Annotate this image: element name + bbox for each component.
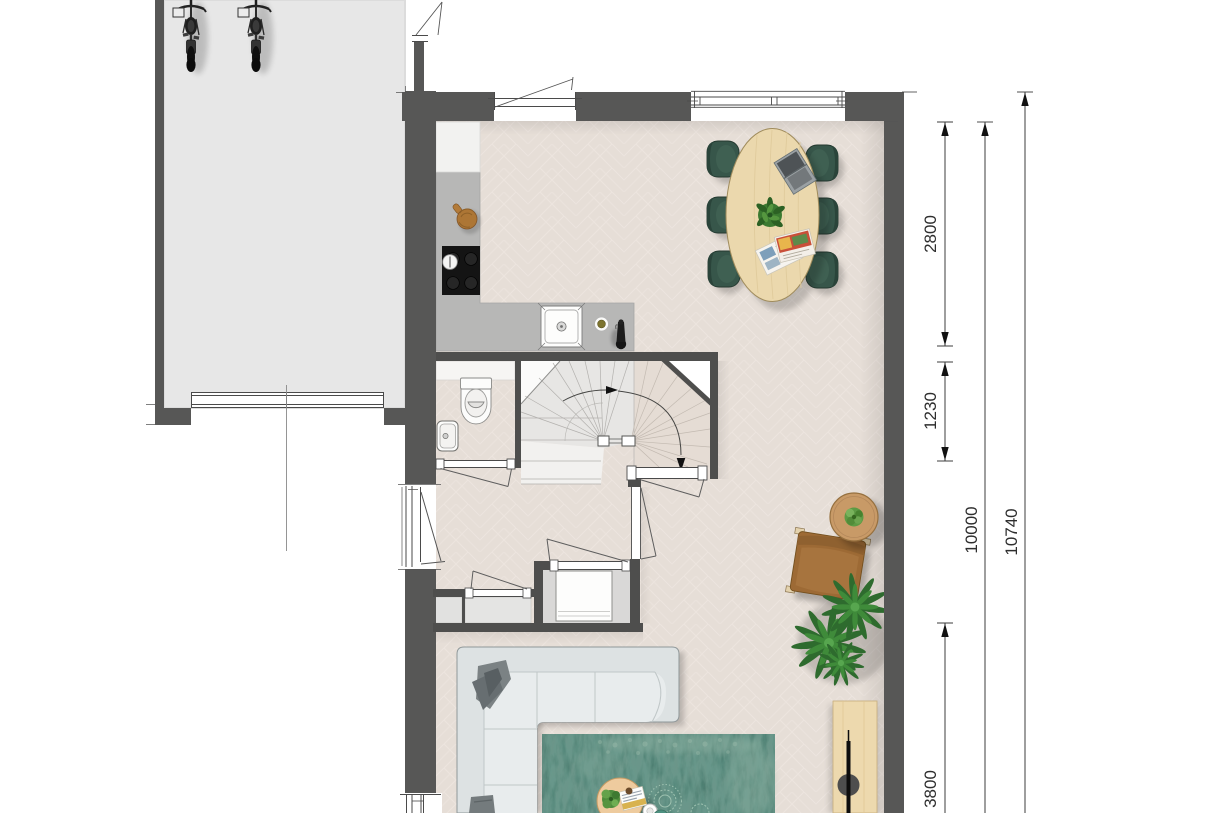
svg-text:2800: 2800 bbox=[921, 215, 940, 253]
svg-text:3800: 3800 bbox=[921, 770, 940, 808]
svg-text:10740: 10740 bbox=[1002, 508, 1021, 555]
svg-text:10000: 10000 bbox=[962, 506, 981, 553]
svg-text:1230: 1230 bbox=[921, 392, 940, 430]
